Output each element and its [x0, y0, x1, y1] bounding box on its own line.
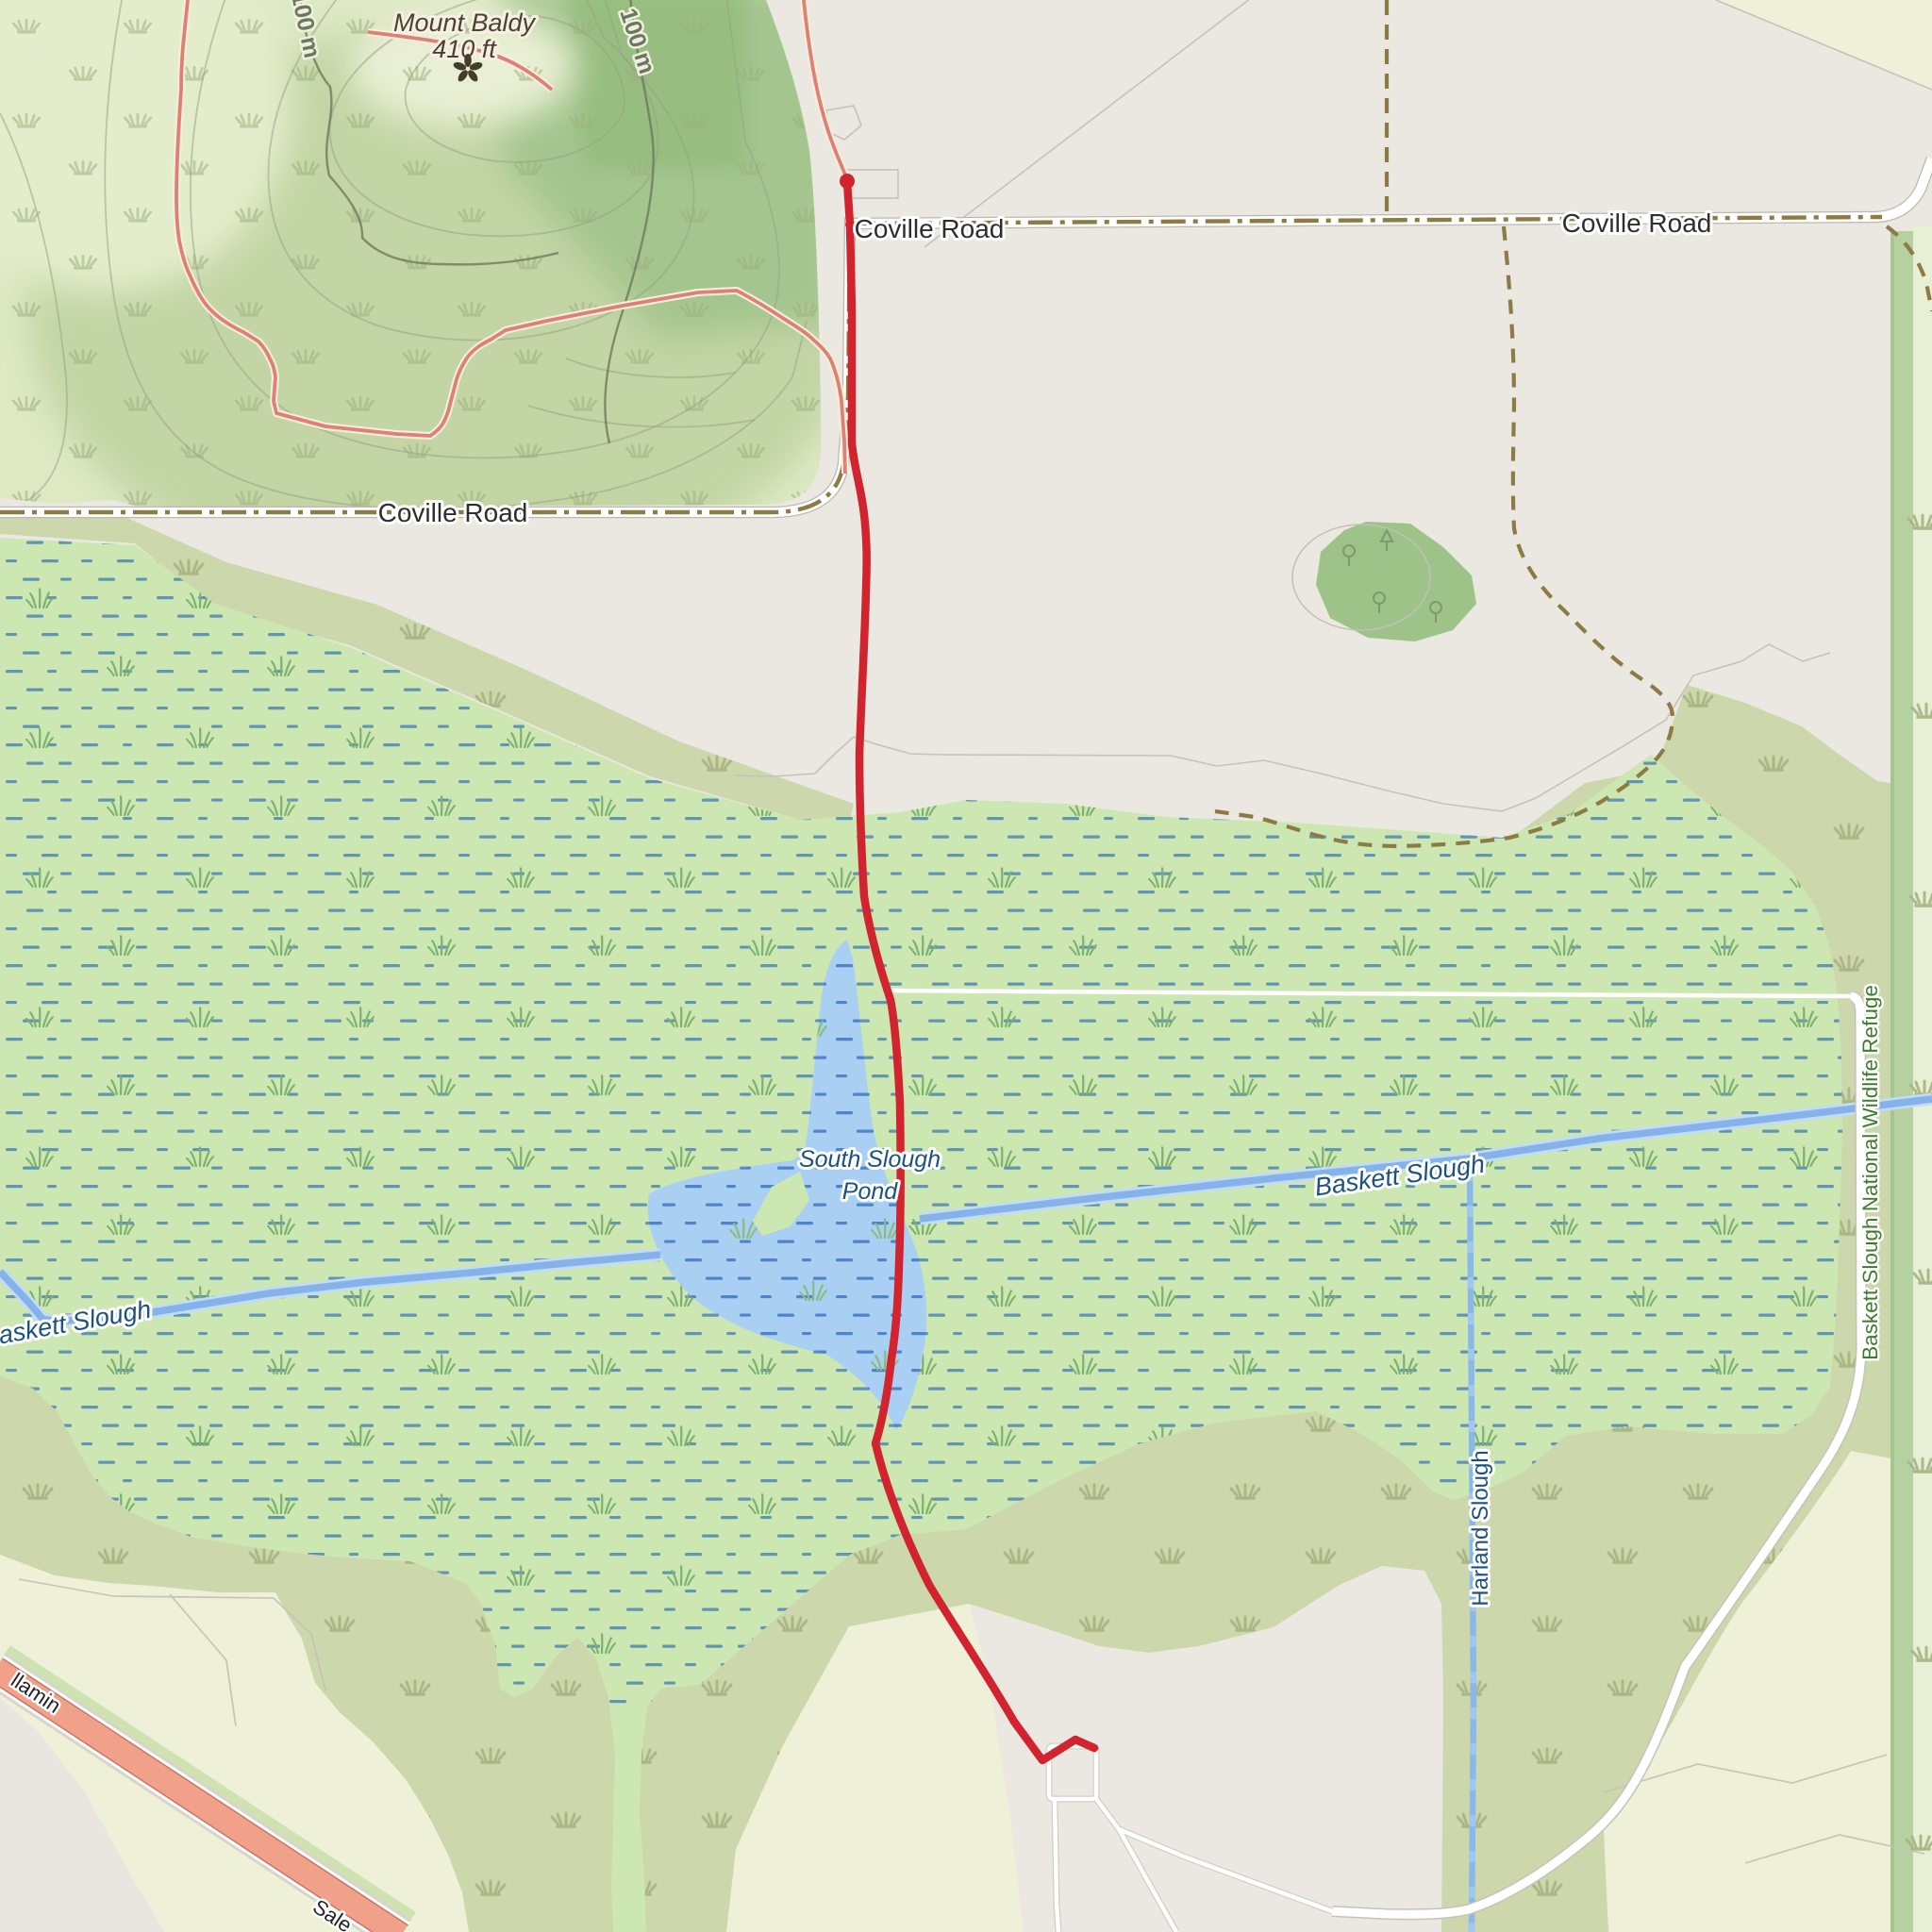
svg-text:Baskett Slough National Wildli: Baskett Slough National Wildlife Refuge: [1858, 985, 1882, 1360]
svg-text:Mount Baldy: Mount Baldy: [393, 8, 537, 37]
svg-text:Pond: Pond: [842, 1178, 898, 1205]
svg-text:Harland Slough: Harland Slough: [1468, 1450, 1493, 1606]
svg-text:Coville Road: Coville Road: [855, 214, 1005, 243]
svg-text:South Slough: South Slough: [799, 1146, 941, 1173]
svg-text:Coville Road: Coville Road: [1562, 208, 1712, 238]
svg-text:Coville Road: Coville Road: [378, 498, 528, 527]
